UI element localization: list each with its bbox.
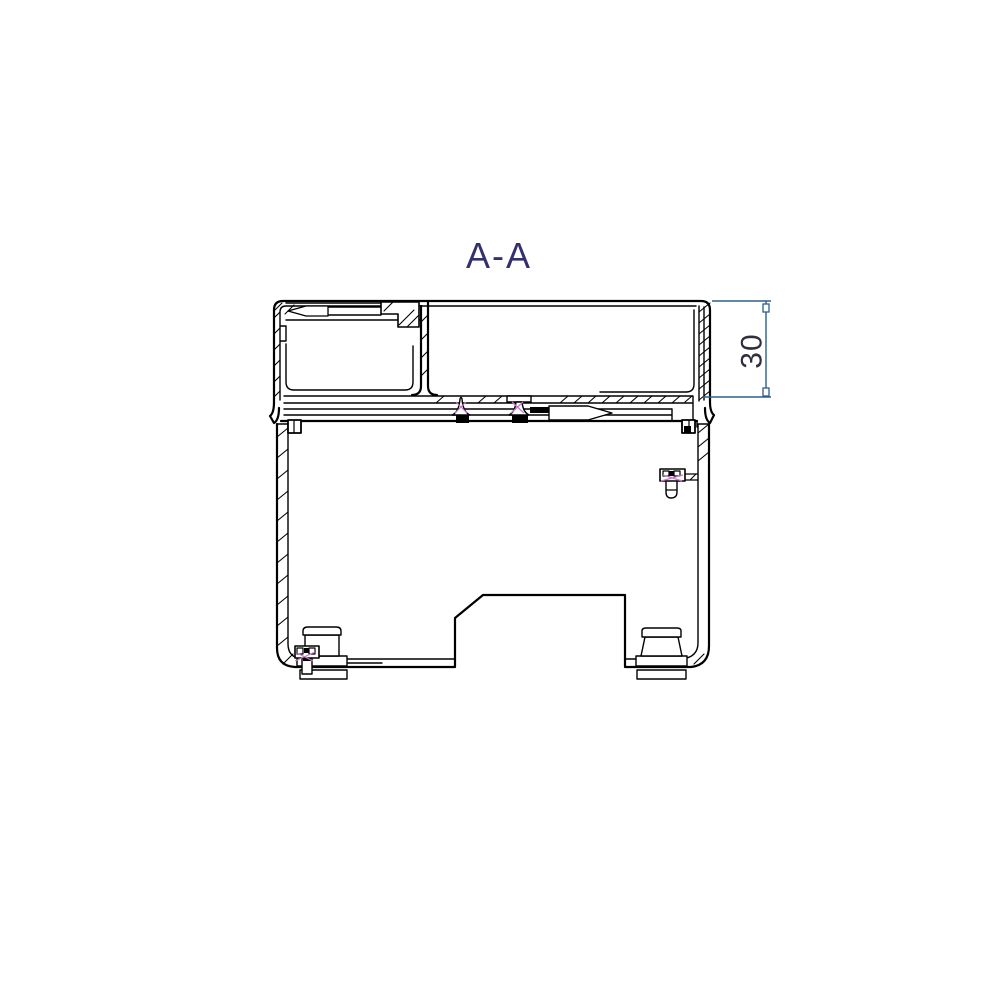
view-title-label: A-A xyxy=(466,235,532,276)
right-foot-body xyxy=(641,637,682,656)
cross-section-drawing: 30 A-A xyxy=(0,0,1000,1000)
dimension-value: 30 xyxy=(736,333,769,368)
left-foot-cap xyxy=(303,627,341,635)
dimension-tick-bottom xyxy=(763,388,769,396)
drawing-background xyxy=(0,0,1000,1000)
right-foot-cap xyxy=(642,628,681,637)
dimension-tick-top xyxy=(763,304,769,312)
left-foot xyxy=(295,627,347,679)
right-foot-plate xyxy=(637,670,686,679)
screw-cap-right xyxy=(507,396,531,402)
right-foot xyxy=(636,628,687,679)
right-foot-base xyxy=(636,656,687,666)
bracket-nub-b xyxy=(674,471,680,476)
cad-canvas: 30 A-A xyxy=(0,0,1000,1000)
